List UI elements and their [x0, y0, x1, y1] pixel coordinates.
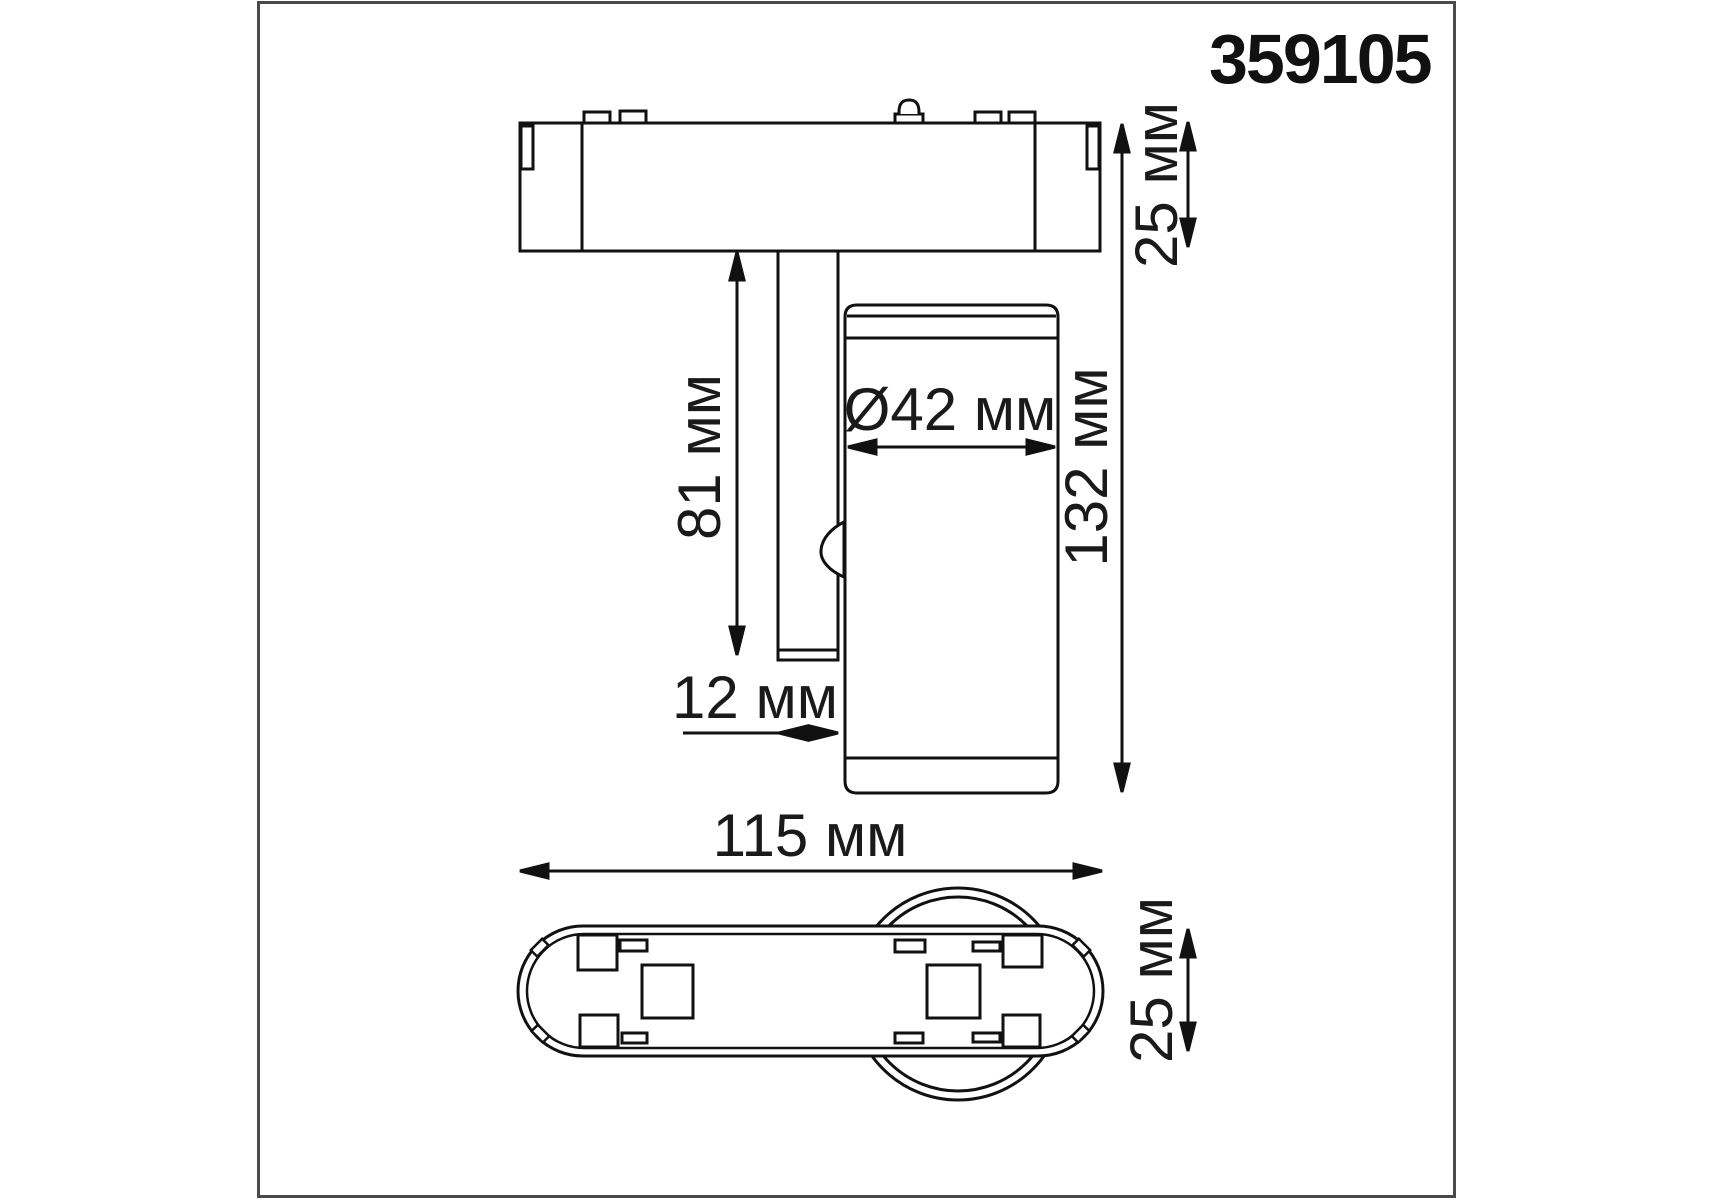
track-adapter-side [520, 100, 1100, 251]
dim-label-adapter-height-top: 25 мм [1127, 102, 1187, 268]
mounting-stem [778, 251, 838, 660]
dim-label-adapter-height-bottom: 25 мм [1122, 897, 1182, 1063]
technical-drawing-page: 359105 25 мм 132 мм 81 мм Ø42 мм 12 мм 1… [0, 0, 1715, 1200]
line-drawing [0, 0, 1715, 1200]
dim-label-head-diameter: Ø42 мм [844, 380, 1057, 440]
dim-label-stem-length: 81 мм [670, 374, 730, 540]
dim-label-adapter-length: 115 мм [713, 806, 908, 866]
dim-label-stem-width: 12 мм [672, 668, 838, 728]
bottom-view [518, 864, 1195, 1100]
part-number: 359105 [1209, 24, 1431, 94]
dim-label-overall-height: 132 мм [1057, 367, 1117, 566]
